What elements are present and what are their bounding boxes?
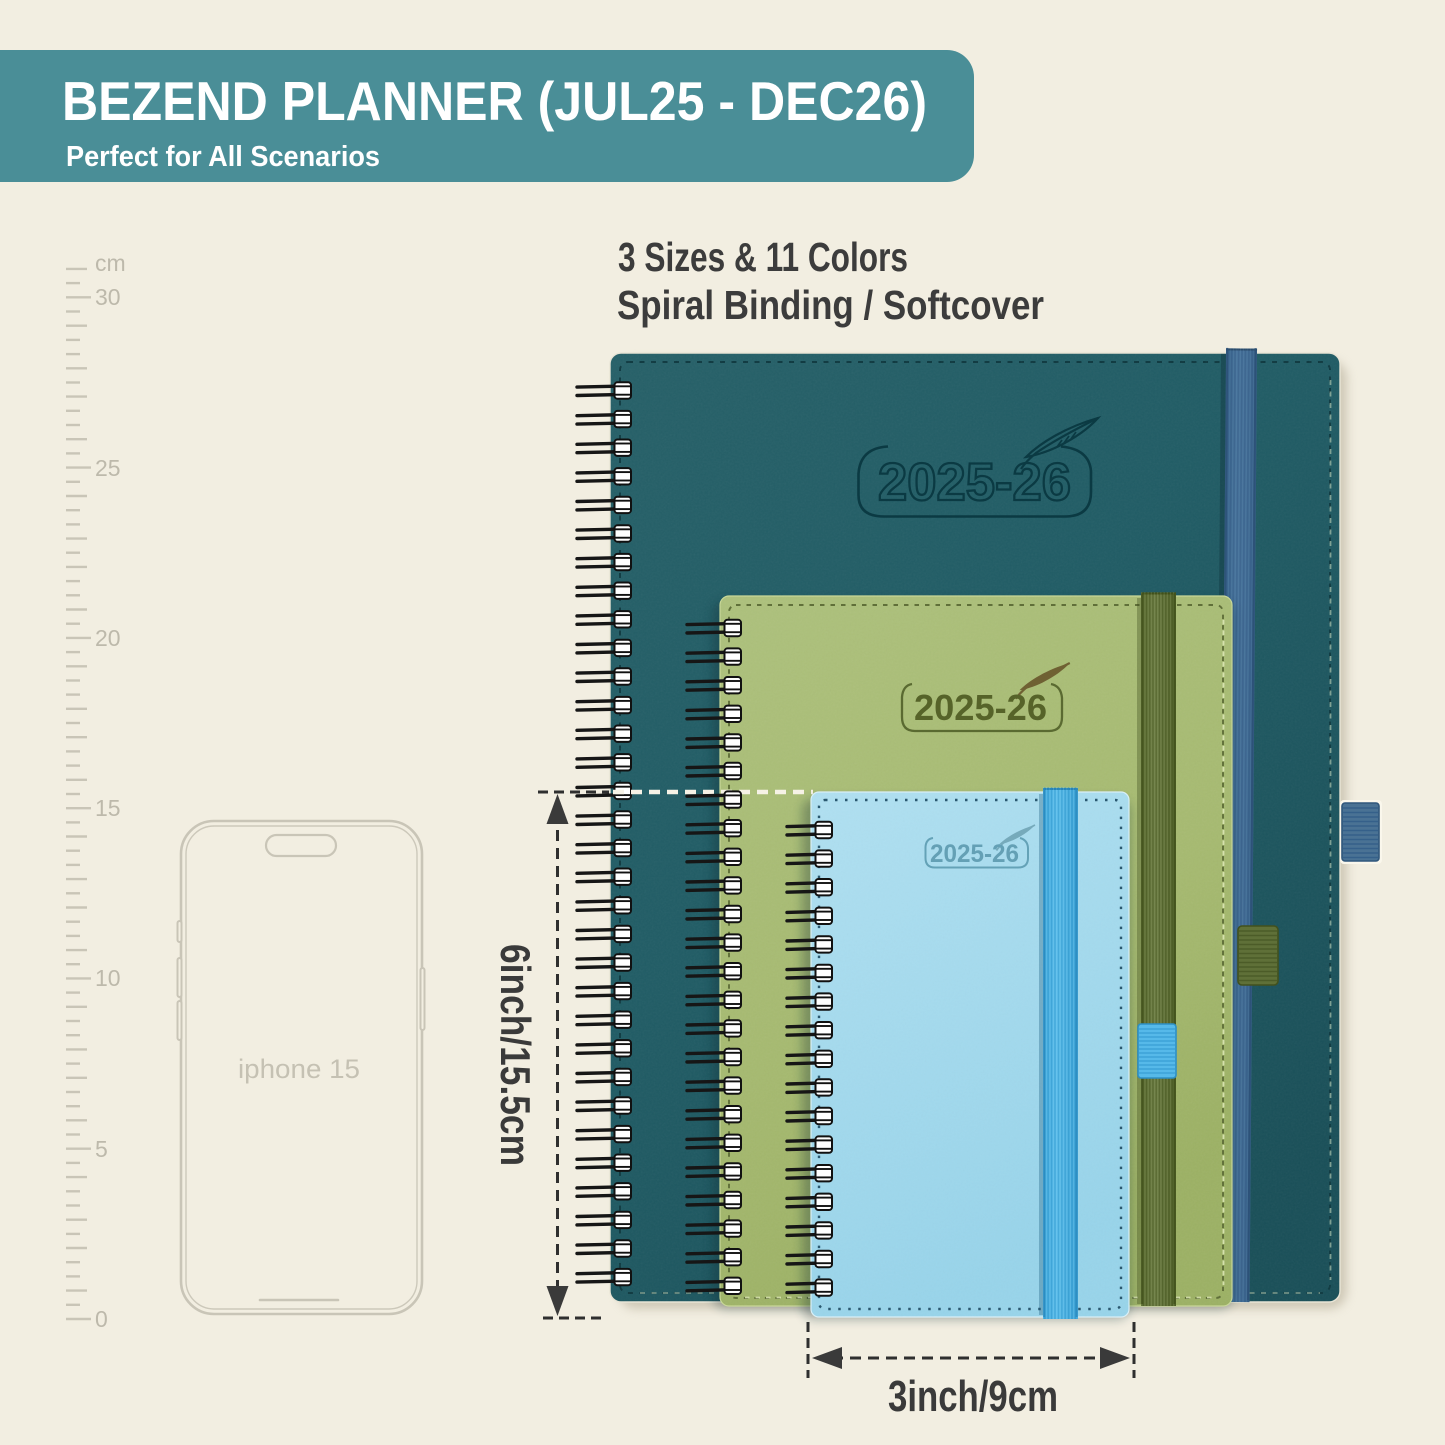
- svg-text:Perfect for All Scenarios: Perfect for All Scenarios: [66, 141, 380, 173]
- svg-text:6inch/15.5cm: 6inch/15.5cm: [492, 944, 539, 1166]
- svg-text:2025-26: 2025-26: [878, 453, 1071, 512]
- svg-text:3 Sizes & 11 Colors: 3 Sizes & 11 Colors: [618, 234, 908, 280]
- svg-text:cm: cm: [95, 250, 126, 276]
- svg-text:30: 30: [95, 284, 121, 310]
- svg-text:10: 10: [95, 965, 121, 991]
- svg-text:5: 5: [95, 1136, 108, 1162]
- svg-text:iphone 15: iphone 15: [238, 1054, 360, 1084]
- svg-text:20: 20: [95, 625, 121, 651]
- svg-text:3inch/9cm: 3inch/9cm: [888, 1372, 1058, 1421]
- svg-text:2025-26: 2025-26: [930, 840, 1019, 868]
- svg-text:15: 15: [95, 795, 121, 821]
- svg-text:BEZEND PLANNER (JUL25 - DEC26): BEZEND PLANNER (JUL25 - DEC26): [62, 70, 927, 132]
- svg-text:25: 25: [95, 455, 121, 481]
- svg-text:2025-26: 2025-26: [914, 687, 1047, 728]
- svg-text:Spiral Binding / Softcover: Spiral Binding / Softcover: [617, 282, 1044, 328]
- svg-text:0: 0: [95, 1306, 108, 1332]
